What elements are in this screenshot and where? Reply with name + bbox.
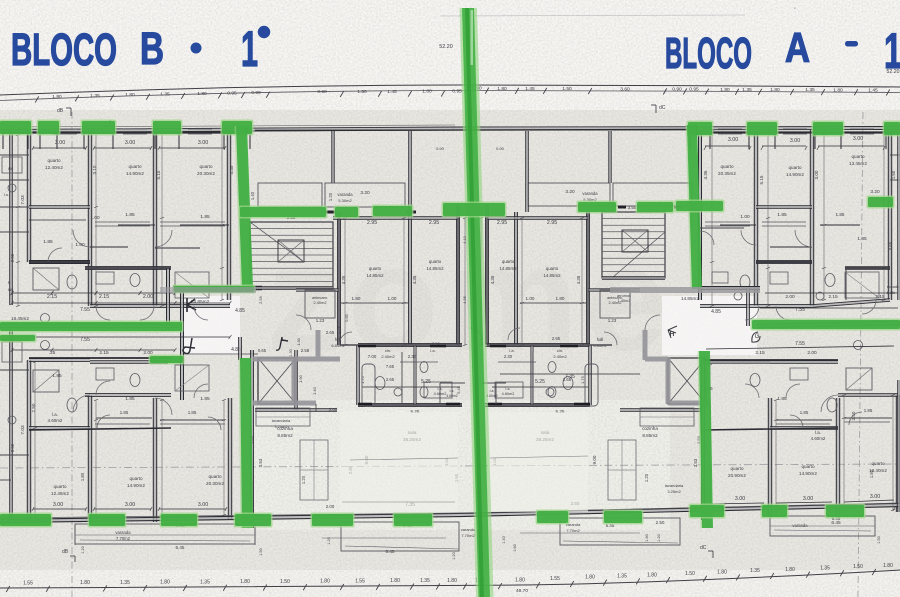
svg-text:2.30: 2.30 [408, 354, 417, 359]
svg-text:3.00: 3.00 [125, 502, 135, 508]
svg-text:1.80: 1.80 [883, 563, 893, 569]
svg-text:14.85m2: 14.85m2 [543, 273, 561, 278]
svg-text:7.03: 7.03 [20, 425, 26, 435]
svg-text:1.55: 1.55 [23, 580, 33, 586]
svg-text:1.23: 1.23 [608, 318, 617, 323]
svg-text:14.90m2: 14.90m2 [786, 172, 804, 177]
svg-text:2.30: 2.30 [504, 354, 513, 359]
svg-text:2.40m2: 2.40m2 [609, 300, 622, 305]
svg-text:l.a.: l.a. [430, 348, 435, 353]
svg-text:dB: dB [62, 549, 69, 555]
svg-text:3.00: 3.00 [735, 496, 745, 502]
svg-text:A: A [785, 24, 810, 71]
svg-text:1.80: 1.80 [647, 572, 657, 578]
svg-text:1.50: 1.50 [891, 170, 896, 179]
svg-text:0.90: 0.90 [251, 90, 261, 96]
svg-text:1.20: 1.20 [81, 546, 85, 553]
svg-text:5.15: 5.15 [156, 170, 161, 179]
svg-text:1.85: 1.85 [800, 410, 809, 415]
svg-text:3.53: 3.53 [693, 458, 698, 467]
svg-text:quarto: quarto [208, 474, 221, 479]
svg-text:4.60m2: 4.60m2 [811, 436, 826, 441]
svg-text:12.45m2: 12.45m2 [51, 491, 69, 496]
svg-text:1.80: 1.80 [515, 578, 525, 584]
svg-text:2.00: 2.00 [326, 504, 335, 509]
svg-text:1.45: 1.45 [387, 89, 397, 95]
svg-text:4.85: 4.85 [235, 308, 245, 314]
svg-text:3.00: 3.00 [853, 136, 863, 142]
svg-text:.25: .25 [49, 350, 56, 355]
svg-text:2.65: 2.65 [386, 377, 395, 382]
svg-text:1.75: 1.75 [580, 375, 585, 384]
svg-text:quarto: quarto [429, 259, 442, 264]
svg-text:varanda: varanda [337, 192, 353, 197]
svg-text:1.85: 1.85 [52, 373, 62, 379]
svg-text:1.45: 1.45 [525, 86, 535, 92]
svg-text:1.20: 1.20 [644, 473, 649, 482]
svg-text:49.70: 49.70 [516, 588, 528, 594]
svg-text:hall: hall [597, 337, 604, 342]
svg-text:5.30m2: 5.30m2 [338, 198, 352, 203]
svg-text:0.65: 0.65 [888, 241, 893, 250]
svg-text:4.60m2: 4.60m2 [486, 394, 497, 398]
svg-text:20.30m2: 20.30m2 [206, 481, 224, 486]
svg-text:1.50: 1.50 [259, 548, 263, 555]
svg-text:l.a.: l.a. [815, 430, 821, 435]
svg-text:1.45: 1.45 [868, 87, 878, 93]
svg-text:1.35: 1.35 [805, 87, 815, 93]
svg-text:1.40: 1.40 [250, 191, 255, 200]
svg-text:7.70m2: 7.70m2 [566, 528, 580, 533]
svg-text:4.85: 4.85 [711, 309, 721, 315]
svg-text:l.a.: l.a. [490, 389, 495, 393]
svg-text:4.35: 4.35 [490, 275, 495, 284]
svg-text:1.80: 1.80 [717, 570, 727, 576]
svg-text:3.00: 3.00 [125, 140, 135, 146]
svg-text:1.85: 1.85 [200, 396, 210, 402]
svg-text:lavandaria: lavandaria [272, 418, 291, 423]
svg-text:0.65: 0.65 [345, 314, 349, 321]
svg-text:1.75: 1.75 [360, 375, 365, 384]
svg-text:1.80: 1.80 [125, 92, 135, 98]
svg-text:quarto: quarto [502, 259, 515, 264]
svg-text:3.00: 3.00 [803, 496, 813, 502]
svg-text:7.55: 7.55 [80, 307, 90, 313]
svg-text:1.85: 1.85 [188, 410, 197, 415]
svg-text:6.45: 6.45 [176, 545, 185, 550]
svg-text:2.00: 2.00 [143, 294, 153, 300]
svg-text:1.35: 1.35 [160, 91, 170, 97]
svg-text:2.95: 2.95 [367, 220, 377, 226]
svg-text:quarto: quarto [546, 266, 559, 271]
svg-text:quarto: quarto [199, 164, 212, 169]
svg-text:1.23: 1.23 [316, 318, 325, 323]
svg-text:2.00: 2.00 [329, 407, 338, 412]
svg-text:0.90: 0.90 [436, 146, 445, 151]
svg-text:2.65: 2.65 [563, 377, 572, 382]
svg-text:52.20: 52.20 [439, 44, 453, 50]
svg-text:varanda: varanda [115, 530, 131, 535]
svg-text:1.80: 1.80 [352, 296, 361, 301]
svg-text:20.35m2: 20.35m2 [718, 171, 736, 176]
svg-text:9.00: 9.00 [592, 455, 597, 464]
svg-text:5.25: 5.25 [421, 379, 431, 385]
svg-text:quarto: quarto [369, 266, 382, 271]
svg-text:1.60: 1.60 [513, 544, 517, 551]
svg-text:6.45: 6.45 [386, 549, 395, 554]
svg-text:3.00: 3.00 [870, 494, 880, 500]
svg-text:1.85: 1.85 [125, 212, 135, 218]
svg-text:3.53: 3.53 [258, 458, 263, 467]
svg-text:quarto: quarto [129, 476, 142, 481]
svg-text:1.00: 1.00 [526, 296, 535, 301]
svg-text:1.90: 1.90 [298, 374, 303, 382]
svg-text:3.00: 3.00 [198, 140, 208, 146]
svg-text:1.00: 1.00 [90, 215, 100, 221]
svg-text:BLOCO: BLOCO [665, 29, 752, 78]
svg-text:0.90: 0.90 [672, 87, 682, 93]
svg-text:l.s.: l.s. [4, 192, 9, 197]
svg-text:1.60: 1.60 [645, 534, 649, 541]
svg-text:14.90m2: 14.90m2 [126, 171, 144, 176]
svg-text:1.80: 1.80 [556, 296, 565, 301]
svg-text:1.50: 1.50 [685, 571, 695, 577]
svg-text:1.80: 1.80 [390, 578, 400, 584]
svg-text:3.25m2: 3.25m2 [667, 489, 681, 494]
svg-text:4.35: 4.35 [462, 295, 467, 304]
svg-text:4.35: 4.35 [412, 275, 417, 284]
svg-text:8.85m2: 8.85m2 [277, 433, 293, 438]
svg-text:1.85: 1.85 [777, 396, 787, 402]
svg-text:2.55: 2.55 [258, 295, 263, 304]
svg-text:1.00: 1.00 [75, 242, 85, 248]
svg-text:B: B [140, 23, 164, 74]
svg-text:14.90m2: 14.90m2 [127, 483, 145, 488]
svg-text:varanda: varanda [582, 191, 598, 196]
svg-text:dB: dB [57, 108, 64, 114]
svg-text:3.00: 3.00 [53, 502, 63, 508]
svg-text:7.65: 7.65 [386, 364, 395, 369]
svg-text:1.85: 1.85 [200, 214, 210, 220]
svg-text:3.20: 3.20 [565, 189, 575, 195]
svg-text:3.60: 3.60 [620, 86, 630, 92]
svg-text:1.20: 1.20 [452, 552, 456, 559]
svg-text:2.15: 2.15 [755, 350, 765, 356]
svg-text:5.25: 5.25 [535, 379, 545, 385]
svg-text:16.45m2: 16.45m2 [11, 316, 29, 321]
svg-text:14.85m2: 14.85m2 [426, 266, 444, 271]
svg-text:2.50: 2.50 [10, 443, 15, 452]
svg-text:1.55: 1.55 [355, 578, 365, 584]
svg-text:2.15: 2.15 [99, 294, 109, 300]
svg-text:1.00: 1.00 [388, 296, 397, 301]
svg-text:1.80: 1.80 [197, 91, 207, 97]
svg-text:0.90: 0.90 [496, 146, 505, 151]
svg-text:0.95: 0.95 [689, 87, 699, 93]
svg-text:2.65: 2.65 [326, 330, 335, 335]
svg-text:dC: dC [659, 105, 666, 111]
svg-text:1.20: 1.20 [657, 534, 661, 541]
svg-text:2.40m2: 2.40m2 [314, 300, 327, 305]
svg-text:1.35: 1.35 [617, 573, 627, 579]
svg-text:2.95: 2.95 [547, 220, 557, 226]
svg-text:1.50: 1.50 [877, 536, 881, 543]
svg-text:2.95: 2.95 [429, 220, 439, 226]
svg-text:quarto: quarto [53, 484, 66, 489]
svg-text:2.15: 2.15 [875, 294, 885, 300]
svg-text:1.40: 1.40 [312, 386, 317, 395]
svg-text:3.20: 3.20 [870, 189, 880, 195]
svg-text:4.35: 4.35 [703, 170, 708, 179]
svg-text:2.00: 2.00 [785, 294, 795, 300]
svg-text:1.20: 1.20 [328, 192, 333, 201]
svg-text:1.30: 1.30 [296, 337, 301, 345]
svg-text:3.20: 3.20 [360, 190, 370, 196]
svg-text:1.50: 1.50 [562, 86, 572, 92]
svg-text:1.80: 1.80 [422, 89, 432, 95]
svg-text:3.00: 3.00 [55, 140, 65, 146]
svg-text:5.15: 5.15 [759, 175, 764, 184]
svg-text:1.80: 1.80 [833, 87, 843, 93]
svg-text:2.50: 2.50 [851, 411, 856, 420]
svg-text:1.80: 1.80 [80, 472, 85, 481]
svg-text:1.35: 1.35 [120, 580, 130, 586]
svg-text:1.80: 1.80 [80, 580, 90, 586]
svg-text:l.a.: l.a. [450, 389, 455, 393]
svg-text:1.80: 1.80 [52, 94, 62, 100]
svg-text:1.50: 1.50 [280, 579, 290, 585]
svg-text:1.40: 1.40 [502, 536, 506, 543]
svg-text:7.55: 7.55 [80, 337, 90, 343]
svg-text:quarto: quarto [730, 466, 743, 471]
svg-text:3.60: 3.60 [317, 89, 327, 95]
svg-text:0.65: 0.65 [258, 348, 267, 353]
svg-text:1.20: 1.20 [327, 537, 331, 544]
svg-text:1.80: 1.80 [720, 87, 730, 93]
svg-text:4.35: 4.35 [576, 275, 581, 284]
svg-text:1.35: 1.35 [90, 93, 100, 99]
svg-text:1.80: 1.80 [240, 579, 250, 585]
svg-text:20.30m2: 20.30m2 [197, 171, 215, 176]
svg-text:14.85m2: 14.85m2 [366, 273, 384, 278]
svg-text:cln.: cln. [557, 348, 563, 353]
svg-text:BLOCO: BLOCO [11, 24, 117, 75]
svg-text:1.35: 1.35 [750, 568, 760, 574]
svg-text:l.a.: l.a. [52, 412, 58, 417]
svg-text:3.00: 3.00 [198, 502, 208, 508]
svg-text:1.20: 1.20 [301, 475, 306, 484]
svg-text:1.85: 1.85 [777, 212, 787, 218]
svg-text:1.80: 1.80 [869, 469, 874, 478]
svg-text:1.85: 1.85 [836, 212, 845, 217]
svg-text:13.45m2: 13.45m2 [849, 161, 867, 166]
svg-text:quarto: quarto [851, 154, 864, 159]
svg-text:1.80: 1.80 [585, 575, 595, 581]
svg-text:quarto: quarto [128, 164, 141, 169]
svg-text:2.40m2: 2.40m2 [553, 354, 567, 359]
svg-text:dC: dC [700, 545, 707, 551]
svg-text:4.60m2: 4.60m2 [502, 392, 515, 396]
svg-text:quarto: quarto [47, 158, 60, 163]
svg-text:7.03: 7.03 [20, 195, 26, 205]
svg-text:1.35: 1.35 [742, 87, 752, 93]
svg-text:3.00: 3.00 [814, 170, 819, 179]
svg-text:14.85m2: 14.85m2 [499, 266, 517, 271]
svg-text:': ' [794, 8, 795, 14]
svg-text:H: H [670, 331, 675, 338]
svg-text:2.00: 2.00 [807, 350, 817, 356]
svg-text:1.30: 1.30 [289, 349, 293, 356]
svg-text:varanda: varanda [792, 523, 808, 528]
svg-text:4.35: 4.35 [229, 165, 234, 174]
svg-text:2.50: 2.50 [10, 253, 15, 262]
svg-text:quarto: quarto [871, 461, 884, 466]
svg-text:3.00: 3.00 [728, 137, 738, 143]
svg-text:1.35: 1.35 [420, 578, 430, 584]
svg-text:2.50: 2.50 [656, 520, 665, 525]
svg-text:1: 1 [241, 21, 258, 77]
svg-text:quarto: quarto [720, 164, 733, 169]
svg-text:cozinha: cozinha [277, 426, 293, 431]
svg-text:G: G [755, 334, 760, 340]
svg-text:quarto: quarto [801, 464, 814, 469]
svg-text:2.15: 2.15 [47, 294, 57, 300]
svg-text:2.15: 2.15 [828, 294, 838, 300]
svg-text:4.60m2: 4.60m2 [48, 418, 63, 423]
svg-text:7.55: 7.55 [795, 341, 805, 347]
svg-text:1.85: 1.85 [864, 408, 873, 413]
svg-text:2.95: 2.95 [552, 336, 561, 341]
svg-text:0.95: 0.95 [452, 89, 462, 95]
svg-text:2.95: 2.95 [497, 220, 507, 226]
svg-text:3.00: 3.00 [790, 138, 800, 144]
svg-text:12.40m2: 12.40m2 [45, 165, 63, 170]
svg-text:1.85: 1.85 [125, 396, 135, 402]
svg-text:lavandaria: lavandaria [665, 483, 684, 488]
svg-text:cln.: cln. [385, 348, 391, 353]
svg-text:1.50: 1.50 [357, 89, 367, 95]
svg-text:1.80: 1.80 [497, 86, 507, 92]
svg-text:4.60m2: 4.60m2 [446, 394, 457, 398]
svg-text:1: 1 [884, 23, 900, 79]
svg-text:5.45: 5.45 [457, 386, 461, 393]
svg-text:l.a.: l.a. [505, 387, 510, 391]
svg-text:1.50: 1.50 [853, 564, 863, 570]
svg-text:14.85m2: 14.85m2 [681, 296, 699, 301]
svg-text:l.a.: l.a. [509, 348, 514, 353]
svg-text:7.70m2: 7.70m2 [461, 533, 475, 538]
svg-text:1.35: 1.35 [820, 565, 830, 571]
svg-text:cozinha: cozinha [642, 426, 658, 431]
svg-text:1.80: 1.80 [770, 87, 780, 93]
svg-text:1.85: 1.85 [857, 236, 867, 242]
svg-text:varanda: varanda [461, 527, 476, 532]
svg-text:1.80: 1.80 [160, 580, 170, 586]
svg-text:2.58: 2.58 [301, 348, 310, 353]
svg-text:0.95: 0.95 [227, 90, 237, 96]
svg-text:wc: wc [8, 166, 13, 171]
svg-text:1.35: 1.35 [200, 579, 210, 585]
svg-text:1.00: 1.00 [740, 214, 750, 220]
svg-text:2.40m2: 2.40m2 [381, 354, 395, 359]
svg-text:14.90m2: 14.90m2 [799, 471, 817, 476]
svg-text:1.80: 1.80 [447, 578, 457, 584]
svg-text:1.55: 1.55 [550, 576, 560, 582]
svg-text:2.15: 2.15 [99, 350, 109, 356]
svg-text:20.90m2: 20.90m2 [728, 473, 746, 478]
svg-text:8.85m2: 8.85m2 [642, 433, 658, 438]
svg-text:1.80: 1.80 [785, 567, 795, 573]
svg-text:quarto: quarto [788, 165, 801, 170]
svg-text:7.00: 7.00 [368, 354, 377, 359]
svg-text:1.80: 1.80 [320, 579, 330, 585]
svg-text:1.85: 1.85 [120, 410, 129, 415]
svg-text:1.85: 1.85 [43, 239, 53, 245]
